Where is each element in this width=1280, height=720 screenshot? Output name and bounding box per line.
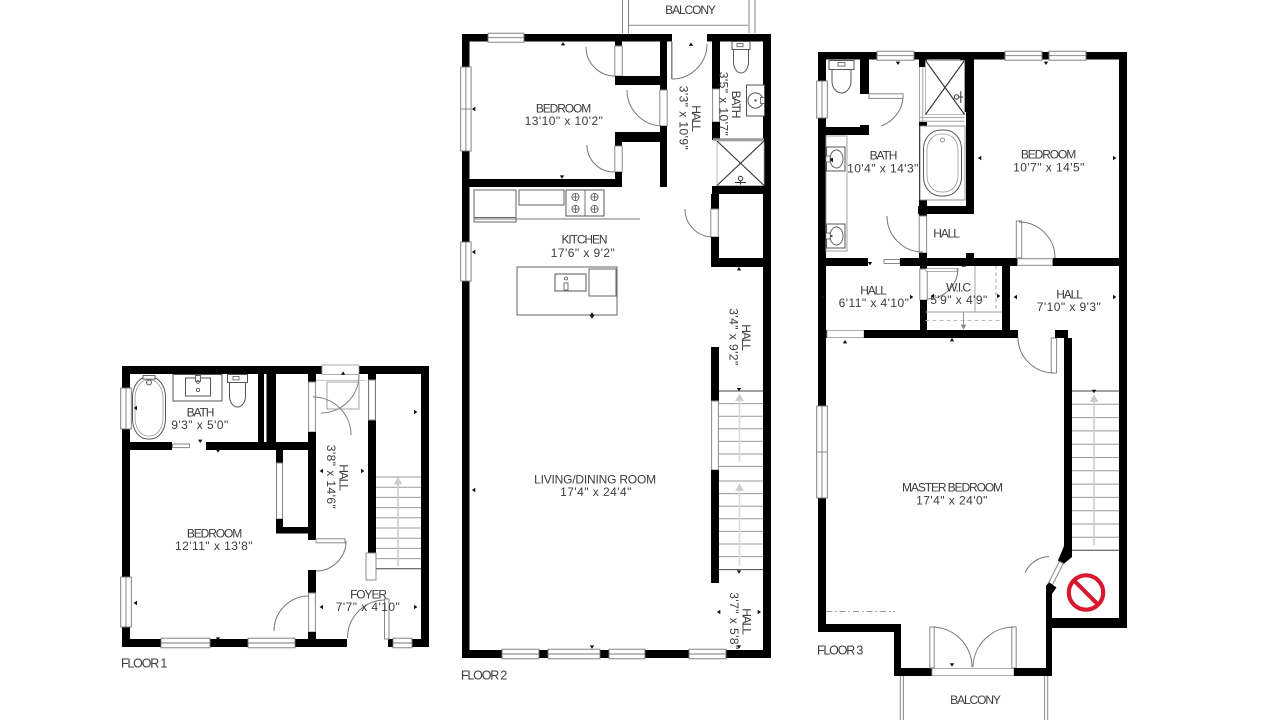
- svg-text:FLOOR 1: FLOOR 1: [121, 657, 167, 671]
- svg-text:5'9" x 4'9": 5'9" x 4'9": [930, 293, 987, 307]
- svg-text:13'10" x 10'2": 13'10" x 10'2": [525, 114, 604, 128]
- svg-text:17'4" x 24'4": 17'4" x 24'4": [560, 485, 632, 499]
- svg-text:10'4" x 14'3": 10'4" x 14'3": [847, 161, 919, 175]
- svg-text:3'3" x 10'9": 3'3" x 10'9": [677, 86, 691, 151]
- svg-text:KITCHEN: KITCHEN: [562, 232, 607, 246]
- svg-text:BALCONY: BALCONY: [665, 3, 716, 17]
- svg-text:BEDROOM: BEDROOM: [1021, 147, 1076, 161]
- svg-text:3'7" x 5'8": 3'7" x 5'8": [727, 592, 741, 649]
- svg-text:3'4" x 9'2": 3'4" x 9'2": [727, 308, 741, 365]
- svg-text:3'8" x 14'6": 3'8" x 14'6": [324, 445, 338, 510]
- svg-text:12'11" x 13'8": 12'11" x 13'8": [175, 539, 253, 553]
- svg-text:MASTER BEDROOM: MASTER BEDROOM: [902, 480, 1003, 494]
- svg-text:BALCONY: BALCONY: [950, 693, 1001, 707]
- svg-text:17'4" x 24'0": 17'4" x 24'0": [916, 493, 988, 507]
- svg-text:FLOOR 3: FLOOR 3: [817, 644, 863, 658]
- svg-text:17'6" x 9'2": 17'6" x 9'2": [551, 246, 616, 260]
- svg-text:10'7" x 14'5": 10'7" x 14'5": [1013, 160, 1085, 174]
- svg-text:HALL: HALL: [933, 226, 960, 240]
- svg-text:3'5" x 10'7": 3'5" x 10'7": [717, 72, 731, 137]
- svg-text:7'10" x 9'3": 7'10" x 9'3": [1037, 300, 1102, 314]
- svg-text:6'11" x 4'10": 6'11" x 4'10": [839, 296, 910, 310]
- svg-text:BATH: BATH: [870, 148, 897, 162]
- svg-text:7'7" x 4'10": 7'7" x 4'10": [336, 600, 401, 614]
- svg-text:9'3" x 5'0": 9'3" x 5'0": [171, 418, 228, 432]
- svg-text:FLOOR 2: FLOOR 2: [461, 668, 507, 682]
